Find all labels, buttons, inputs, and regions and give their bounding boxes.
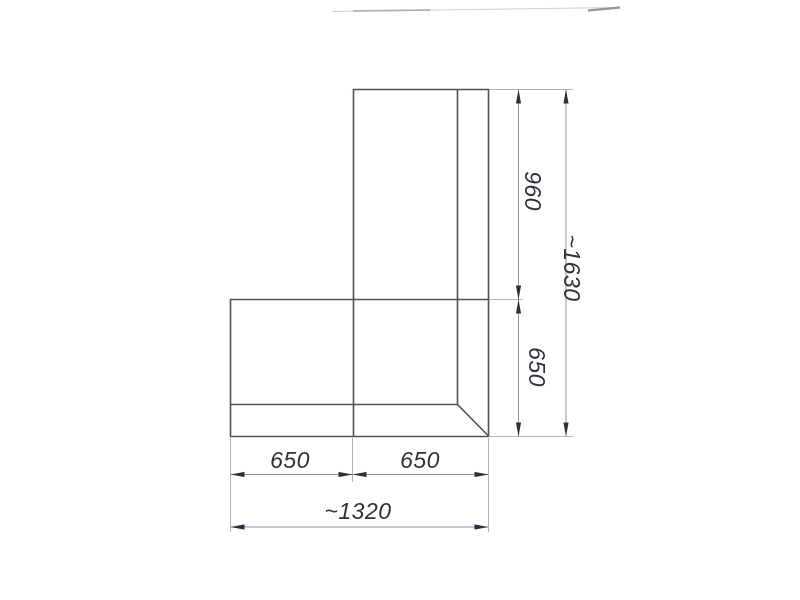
- dimension-arrowhead-down: [516, 286, 521, 300]
- dimension-arrowhead-right: [475, 472, 489, 477]
- dimension-arrowhead-down: [516, 423, 521, 437]
- scan-artifact-line: [353, 10, 430, 11]
- scan-artifacts: [332, 8, 620, 12]
- dimension-labels: 960650~1630650650~1320: [270, 171, 585, 524]
- dim-label-650-right: 650: [400, 447, 440, 473]
- dimension-arrowhead-left: [353, 472, 367, 477]
- scanned-page: 960650~1630650650~1320: [0, 0, 800, 600]
- dimension-arrowhead-left: [231, 524, 245, 529]
- dimension-arrowhead-up: [516, 300, 521, 314]
- dim-label-1630-overall-height: ~1630: [559, 234, 585, 301]
- dim-label-650-vertical: 650: [524, 347, 550, 387]
- outline-line: [458, 405, 490, 437]
- dim-label-960: 960: [520, 171, 546, 211]
- dim-label-650-left: 650: [270, 447, 310, 473]
- dimension-arrowhead-right: [475, 524, 489, 529]
- dimension-arrowhead-right: [339, 472, 353, 477]
- dimension-arrowhead-up: [516, 90, 521, 104]
- shape-outline: [230, 89, 489, 437]
- dim-label-1320-overall-width: ~1320: [324, 498, 391, 524]
- l-shape-corner-unit-technical-drawing: 960650~1630650650~1320: [0, 0, 800, 600]
- dimension-arrowhead-left: [231, 472, 245, 477]
- dimension-arrowhead-down: [563, 423, 568, 437]
- dimension-arrowhead-up: [563, 90, 568, 104]
